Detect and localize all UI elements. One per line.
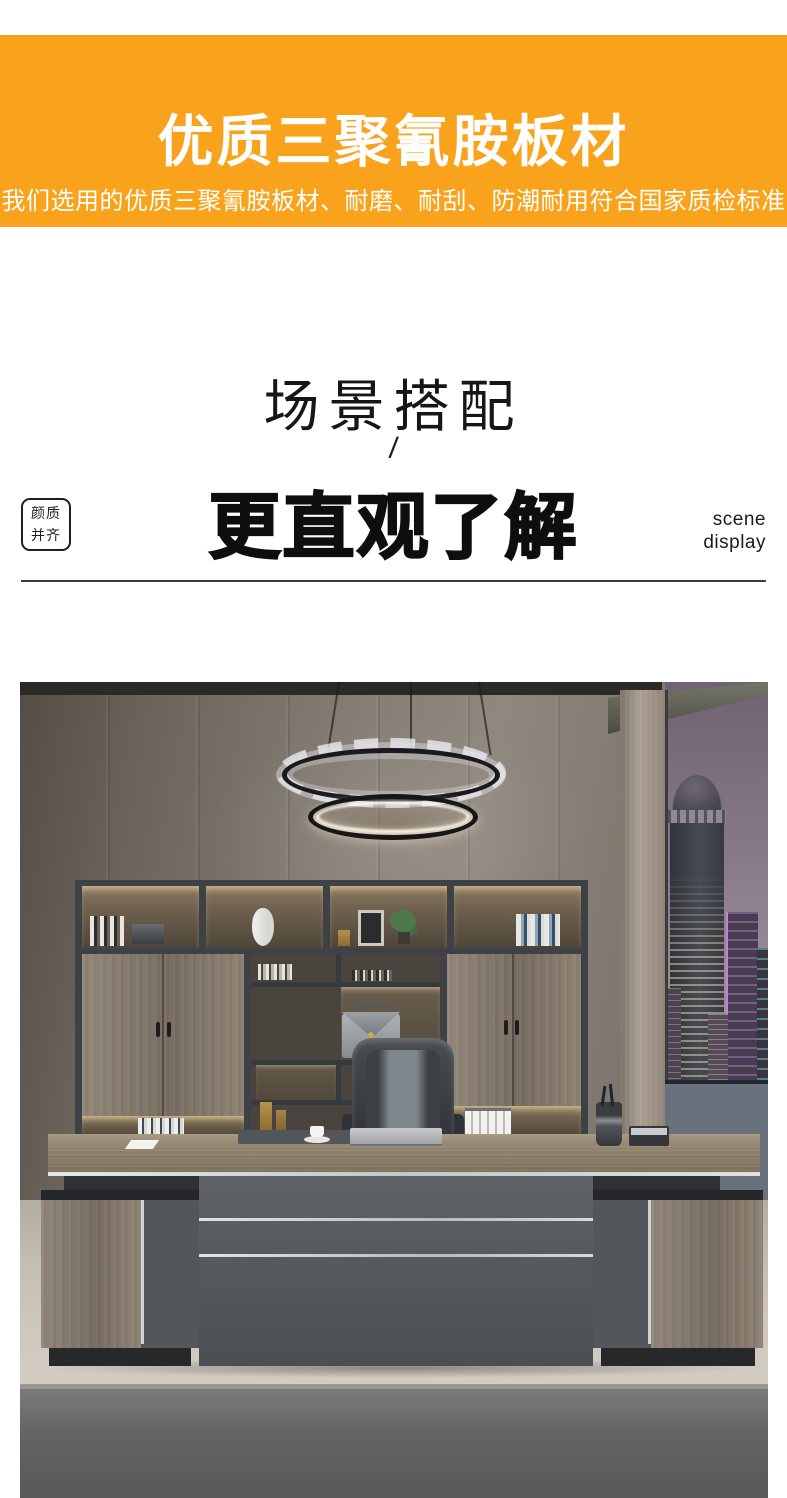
- middle-shelf-books: [258, 964, 292, 980]
- pen-holder: [596, 1102, 622, 1146]
- shelf-books-left: [90, 916, 124, 946]
- middle-shelf-books: [352, 970, 392, 981]
- promo-banner: 优质三聚氰胺板材 我们选用的优质三聚氰胺板材、耐磨、耐刮、防潮耐用符合国家质检标…: [0, 35, 787, 227]
- banner-title: 优质三聚氰胺板材: [0, 97, 787, 178]
- desk-right-pedestal: [651, 1190, 763, 1348]
- coffee-saucer: [304, 1136, 330, 1143]
- desk-front-panel: [199, 1176, 593, 1366]
- desk-mat: [238, 1130, 358, 1144]
- picture-frame: [358, 910, 384, 946]
- scene-display-line-1: scene: [703, 508, 766, 531]
- desk-left-plinth: [49, 1348, 191, 1366]
- shelf-divider-vertical: [336, 954, 341, 982]
- white-vase: [252, 908, 274, 946]
- desk-top-edge: [48, 1146, 760, 1172]
- left-cabinet-handle: [167, 1022, 171, 1037]
- desk-left-pedestal-reveal: [41, 1190, 199, 1200]
- shelf-books-right: [516, 914, 560, 946]
- office-scene-photo: [20, 682, 768, 1498]
- plant-pot: [398, 932, 410, 944]
- desk-left-pedestal-trim: [141, 1194, 144, 1344]
- left-cabinet-door-seam: [162, 954, 164, 1116]
- shelf-divider: [251, 982, 440, 987]
- badge-line-2: 并齐: [31, 525, 61, 547]
- ceiling-edge: [20, 682, 662, 695]
- scene-display-line-2: display: [703, 531, 766, 554]
- coffee-cup: [310, 1126, 324, 1137]
- chandelier-led-glow: [316, 801, 470, 833]
- open-shelf-books: [138, 1118, 184, 1135]
- right-cabinet-doors: [447, 954, 581, 1106]
- hard-floor: [20, 1389, 768, 1498]
- left-cabinet-handle: [156, 1022, 160, 1037]
- right-cabinet-door-seam: [512, 954, 514, 1106]
- skyline-building-neon: [726, 912, 758, 1080]
- middle-shelf-lit-cell: [256, 1065, 336, 1100]
- right-cabinet-handle: [515, 1020, 519, 1035]
- skyline-tower-colonnade: [668, 810, 726, 823]
- desk-panel-accent-line: [199, 1254, 593, 1257]
- desk-left-pedestal: [41, 1190, 141, 1348]
- desk-right-plinth: [601, 1348, 755, 1366]
- quality-badge: 颜质 并齐: [21, 498, 71, 551]
- shelf-typewriter-decor: [132, 924, 164, 944]
- shelf-divider-vertical: [336, 1065, 341, 1100]
- scene-display-label: scene display: [703, 508, 766, 554]
- green-plant: [390, 910, 416, 932]
- badge-line-1: 颜质: [31, 503, 61, 525]
- section-divider-line: [21, 580, 766, 582]
- desk-right-pedestal-panel: [593, 1190, 651, 1348]
- window-pillar-texture: [620, 690, 665, 1140]
- banner-subtitle: 我们选用的优质三聚氰胺板材、耐磨、耐刮、防潮耐用符合国家质检标准: [0, 181, 787, 216]
- desk-panel-accent-line: [199, 1218, 593, 1221]
- desk-left-pedestal-panel: [141, 1190, 199, 1348]
- card-holder-top: [631, 1128, 667, 1135]
- desk-right-pedestal-reveal: [593, 1190, 763, 1200]
- section-subheading: 更直观了解: [0, 468, 787, 573]
- skyline-building-cyan: [757, 948, 768, 1080]
- gold-canister: [338, 930, 350, 946]
- right-cabinet-handle: [504, 1020, 508, 1035]
- skyline-building-small: [708, 1014, 728, 1080]
- laptop: [350, 1128, 442, 1146]
